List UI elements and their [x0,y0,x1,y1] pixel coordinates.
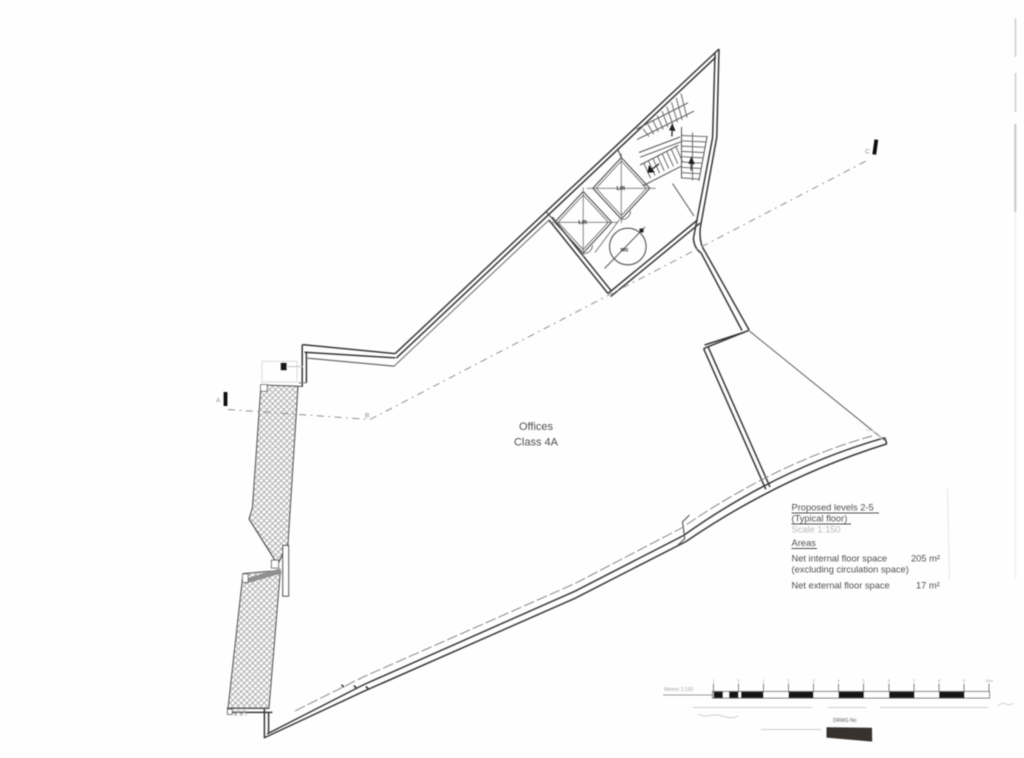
svg-text:Net internal floor space: Net internal floor space [792,554,888,564]
svg-text:Lift: Lift [578,220,587,226]
svg-text:Scale 1:150: Scale 1:150 [792,525,841,535]
svg-text:wc: wc [619,248,629,254]
svg-text:Areas: Areas [792,538,817,548]
svg-text:Proposed levels 2-5: Proposed levels 2-5 [792,503,874,513]
svg-text:Offices: Offices [519,421,554,433]
svg-text:Metres 1:150: Metres 1:150 [664,687,693,693]
svg-text:(excluding circulation space): (excluding circulation space) [792,565,909,575]
svg-text:Class 4A: Class 4A [514,437,559,449]
svg-text:(Typical floor): (Typical floor) [792,514,848,524]
svg-text:Net external floor space: Net external floor space [792,581,890,591]
svg-text:C: C [865,149,870,156]
svg-text:Lift: Lift [617,186,626,192]
svg-text:A: A [216,398,221,405]
svg-text:10m: 10m [985,678,993,683]
svg-text:DRWG No: DRWG No [833,718,857,724]
svg-text:B: B [365,413,369,420]
svg-text:17 m²: 17 m² [916,581,940,591]
svg-text:205 m²: 205 m² [911,554,940,564]
